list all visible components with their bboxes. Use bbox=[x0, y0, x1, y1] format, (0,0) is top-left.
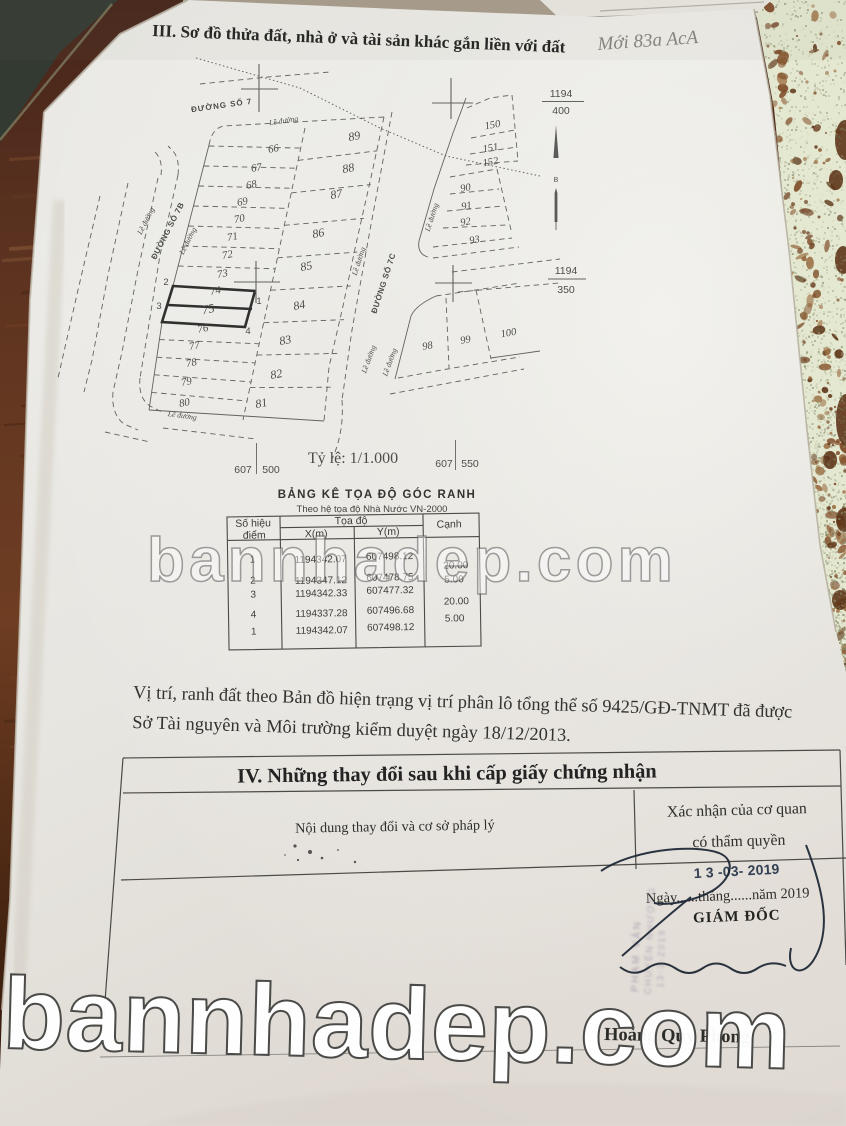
svg-text:5.00: 5.00 bbox=[445, 613, 465, 624]
svg-text:BẢNG KÊ TỌA ĐỘ GÓC RANH: BẢNG KÊ TỌA ĐỘ GÓC RANH bbox=[278, 488, 477, 501]
svg-text:4: 4 bbox=[251, 610, 257, 621]
svg-text:3: 3 bbox=[156, 301, 161, 312]
svg-text:1: 1 bbox=[256, 296, 261, 307]
svg-text:607498.12: 607498.12 bbox=[367, 622, 415, 634]
svg-text:bannhadep.com: bannhadep.com bbox=[147, 526, 677, 595]
svg-text:550: 550 bbox=[461, 458, 479, 470]
svg-text:20.00: 20.00 bbox=[444, 596, 470, 607]
svg-text:B: B bbox=[554, 177, 559, 184]
svg-text:2: 2 bbox=[163, 277, 168, 288]
svg-text:Tỷ lệ: 1/1.000: Tỷ lệ: 1/1.000 bbox=[308, 450, 398, 467]
svg-text:607: 607 bbox=[435, 458, 453, 470]
svg-text:1194: 1194 bbox=[555, 265, 578, 277]
svg-text:500: 500 bbox=[262, 464, 280, 476]
svg-text:1194342.07: 1194342.07 bbox=[296, 625, 349, 637]
svg-text:1194: 1194 bbox=[550, 88, 573, 100]
svg-text:93: 93 bbox=[468, 234, 480, 247]
svg-text:75: 75 bbox=[201, 301, 216, 317]
svg-text:400: 400 bbox=[552, 105, 570, 117]
svg-text:71: 71 bbox=[226, 230, 239, 244]
svg-text:607: 607 bbox=[234, 464, 252, 476]
svg-text:91: 91 bbox=[460, 200, 472, 213]
svg-text:bannhadep.com: bannhadep.com bbox=[1, 956, 792, 1091]
svg-text:607496.68: 607496.68 bbox=[367, 605, 415, 617]
svg-text:1194337.28: 1194337.28 bbox=[295, 608, 348, 620]
svg-text:4: 4 bbox=[245, 326, 250, 337]
svg-text:1: 1 bbox=[251, 627, 257, 638]
svg-text:có thẩm quyền: có thẩm quyền bbox=[692, 832, 786, 851]
svg-text:350: 350 bbox=[557, 284, 575, 296]
